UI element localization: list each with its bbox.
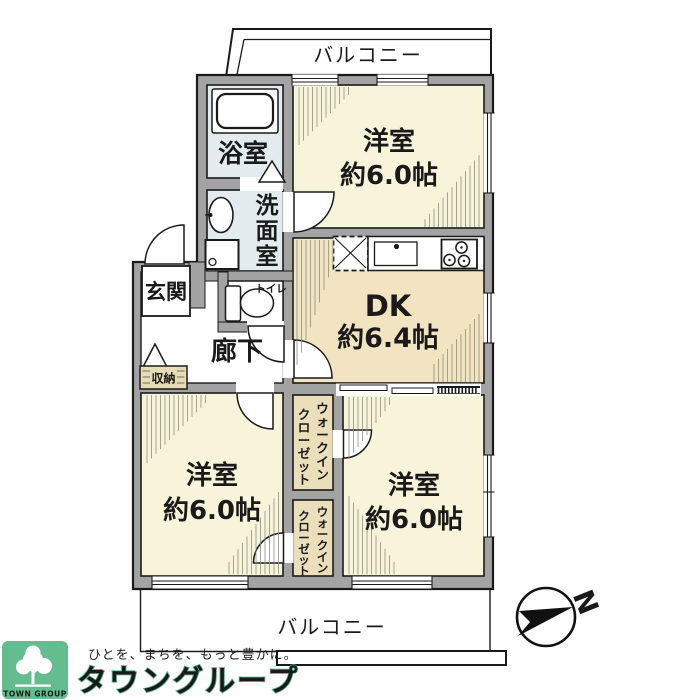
bedroom-left-size: 約6.0帖 (163, 495, 261, 526)
toilet-label: トイレ (255, 283, 287, 295)
floor-plan: バルコニー バルコニー 浴室 洗面室 トイレ 玄関 廊下 収納 洋室 約6.0帖… (0, 0, 700, 700)
wic1-label-line1: ウォークイン (316, 401, 329, 482)
brand-tagline: ひとを、まちを、もっと豊かに。 (88, 648, 298, 663)
bedroom-top-size: 約6.0帖 (340, 160, 438, 191)
kitchen (334, 237, 485, 271)
washing-machine-icon (206, 240, 239, 269)
wic2-label-line2: クローゼット (298, 509, 310, 578)
entrance-label: 玄関 (145, 280, 187, 304)
window-top-2 (377, 75, 428, 86)
window-right-1 (484, 113, 495, 193)
bedroom-left-name: 洋室 (186, 460, 238, 491)
brand-company: タウングループ (77, 664, 299, 699)
balcony-top-label: バルコニー (313, 43, 423, 67)
bathtub-icon (212, 89, 278, 133)
balcony-bottom-label: バルコニー (277, 615, 387, 639)
logo-text: TOWN GROUP (3, 690, 67, 699)
washroom-label: 洗面室 (256, 193, 279, 270)
dk-name: DK (365, 289, 413, 323)
refrigerator-space-icon (334, 237, 369, 271)
window-top-1 (292, 75, 338, 86)
bath-label: 浴室 (218, 139, 268, 168)
bedroom-right-size: 約6.0帖 (365, 504, 463, 535)
floorplan-page: バルコニー バルコニー 浴室 洗面室 トイレ 玄関 廊下 収納 洋室 約6.0帖… (0, 0, 700, 700)
wic2-label-line1: ウォークイン (317, 505, 329, 575)
sink-icon (375, 242, 418, 266)
dk-size: 約6.4帖 (337, 322, 439, 354)
sliding-door (336, 384, 481, 397)
wic1-label-line2: クローゼット (298, 407, 311, 487)
town-group-logo: TOWN GROUP ひとを、まちを、もっと豊かに。 タウングループ (2, 641, 299, 699)
stove-icon (442, 240, 478, 269)
storage-label: 収納 (151, 371, 175, 386)
entrance-door-arc (145, 225, 184, 264)
hallway-label: 廊下 (211, 336, 263, 367)
window-bottom-1 (152, 577, 248, 589)
bedroom-right-name: 洋室 (388, 470, 440, 501)
window-right-3 (484, 455, 495, 537)
bedroom-top-name: 洋室 (363, 126, 415, 157)
compass-icon: N (517, 585, 605, 646)
window-right-2 (484, 293, 495, 343)
window-bottom-2 (352, 577, 432, 589)
